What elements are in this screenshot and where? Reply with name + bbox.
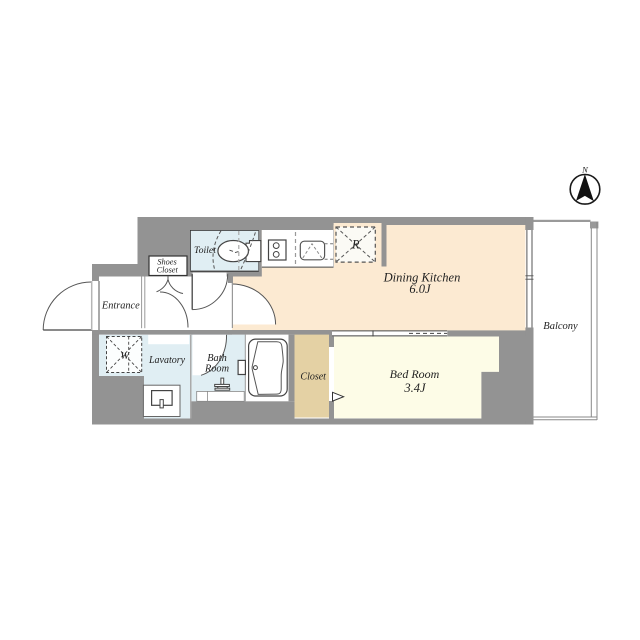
svg-text:Closet: Closet bbox=[300, 372, 326, 383]
svg-text:Room: Room bbox=[204, 364, 229, 375]
svg-text:Bath: Bath bbox=[207, 353, 226, 364]
svg-text:3.4J: 3.4J bbox=[403, 381, 427, 395]
svg-text:R: R bbox=[351, 237, 360, 251]
svg-text:Closet: Closet bbox=[157, 265, 179, 274]
svg-text:Entrance: Entrance bbox=[101, 301, 140, 312]
svg-text:6.0J: 6.0J bbox=[409, 282, 432, 296]
svg-text:W: W bbox=[120, 351, 130, 362]
svg-text:Toilet: Toilet bbox=[194, 245, 216, 256]
svg-text:Balcony: Balcony bbox=[543, 321, 578, 332]
svg-text:Lavatory: Lavatory bbox=[148, 355, 186, 366]
svg-text:Bed Room: Bed Room bbox=[390, 367, 440, 381]
